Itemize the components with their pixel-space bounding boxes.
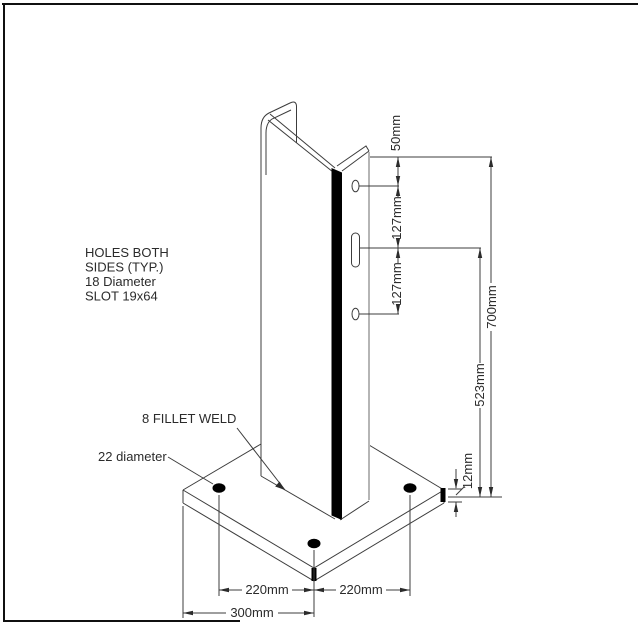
arrowhead xyxy=(400,588,410,592)
dim-label-220mm-left: 220mm xyxy=(245,582,288,597)
weld-leader-arrowhead xyxy=(275,482,285,491)
dim-127mm-upper: 127mm xyxy=(389,186,404,248)
column-lip-edge-stripe xyxy=(332,168,343,520)
bolt-hole-right xyxy=(404,483,417,493)
dim-label-127mm-upper: 127mm xyxy=(389,196,404,239)
dim-220mm-left: 220mm xyxy=(219,582,314,597)
arrowhead xyxy=(304,611,314,615)
column-web-top-outer xyxy=(270,114,335,168)
bolt-hole-left xyxy=(213,483,226,493)
column-base-edge-right xyxy=(340,501,369,520)
arrowhead xyxy=(489,487,493,497)
arrowhead xyxy=(489,157,493,167)
bolt-hole-bottom xyxy=(308,539,321,549)
dim-label-523mm: 523mm xyxy=(472,363,487,406)
dim-label-300mm: 300mm xyxy=(230,605,273,620)
dim-label-50mm: 50mm xyxy=(388,115,403,151)
arrowhead xyxy=(314,588,324,592)
anchor-hole-leader-line xyxy=(168,457,213,484)
drawing-frame xyxy=(2,3,638,621)
plate-right-corner-tick xyxy=(441,488,446,502)
dim-220mm-right: 220mm xyxy=(314,582,410,597)
plate-top-left-edge xyxy=(183,444,261,490)
extension-lines xyxy=(183,157,502,618)
weld-note-label: 8 FILLET WELD xyxy=(142,411,236,426)
dim-label-700mm: 700mm xyxy=(484,285,499,328)
dim-label-127mm-lower: 127mm xyxy=(389,262,404,305)
dim-label-12mm: 12mm xyxy=(460,453,475,489)
holes-note-line3: 18 Diameter xyxy=(85,274,156,289)
column-top-hook-inner xyxy=(266,110,291,175)
arrowhead xyxy=(478,487,482,497)
column-base-edge-left xyxy=(261,476,335,519)
technical-drawing-page: 50mm 127mm 127mm 700mm 523mm 12mm xyxy=(0,0,638,634)
dim-label-220mm-right: 220mm xyxy=(339,582,382,597)
holes-note-line1: HOLES BOTH xyxy=(85,245,169,260)
column xyxy=(261,102,369,520)
holes-note-line2: SIDES (TYP.) xyxy=(85,260,164,275)
column-right-face-top-inner xyxy=(342,151,369,171)
arrowhead xyxy=(396,186,400,196)
holes-note: HOLES BOTH SIDES (TYP.) 18 Diameter SLOT… xyxy=(85,245,169,304)
arrowhead xyxy=(454,479,458,489)
column-hole-upper xyxy=(352,180,359,192)
arrowhead xyxy=(304,588,314,592)
holes-note-line4: SLOT 19x64 xyxy=(85,289,158,304)
anchor-hole-note-label: 22 diameter xyxy=(98,449,167,464)
arrowhead xyxy=(396,157,400,167)
column-web-top-inner xyxy=(268,120,333,172)
dim-12mm: 12mm xyxy=(454,453,475,517)
dim-127mm-lower: 127mm xyxy=(389,248,404,314)
dim-300mm: 300mm xyxy=(183,605,314,620)
arrowhead xyxy=(478,248,482,258)
arrowhead xyxy=(219,588,229,592)
column-slot xyxy=(352,233,360,267)
dim-700mm: 700mm xyxy=(484,157,499,497)
plate-top-right-edge xyxy=(369,445,444,490)
column-hole-lower xyxy=(352,308,359,320)
anchor-hole-callout: 22 diameter xyxy=(98,449,213,484)
isometric-column-drawing: 50mm 127mm 127mm 700mm 523mm 12mm xyxy=(0,0,638,634)
arrowhead xyxy=(183,611,193,615)
arrowhead xyxy=(454,502,458,512)
arrowhead xyxy=(396,248,400,258)
arrowhead xyxy=(396,176,400,186)
